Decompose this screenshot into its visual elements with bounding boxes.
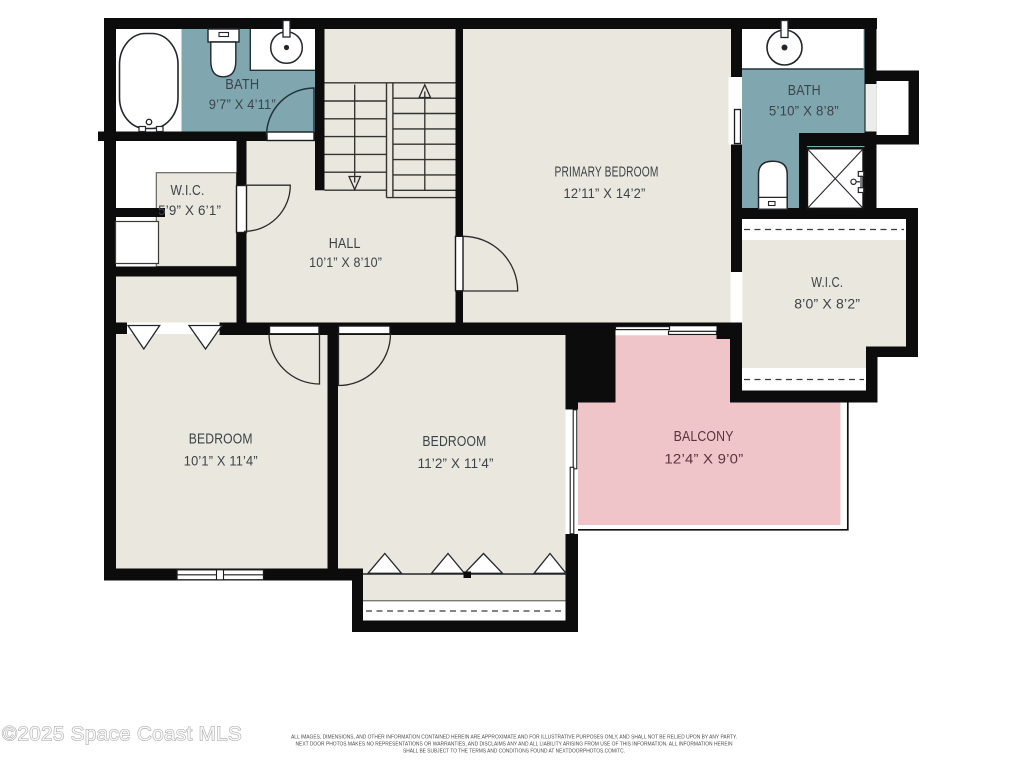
svg-text:©2025 Space Coast MLS: ©2025 Space Coast MLS [2,723,242,746]
svg-text:HALL: HALL [329,236,361,252]
svg-text:NEXT DOOR PHOTOS MAKES NO REPR: NEXT DOOR PHOTOS MAKES NO REPRESENTATION… [296,742,733,748]
svg-text:10’1” X 11’4”: 10’1” X 11’4” [184,453,258,469]
svg-text:SHALL BE SUBJECT TO THE TERMS: SHALL BE SUBJECT TO THE TERMS AND CONDIT… [403,749,625,755]
svg-text:BEDROOM: BEDROOM [422,434,486,450]
svg-text:12’11” X 14’2”: 12’11” X 14’2” [564,185,646,201]
svg-text:W.I.C.: W.I.C. [171,183,205,199]
svg-text:5’9” X 6’1”: 5’9” X 6’1” [158,202,221,218]
svg-text:ALL IMAGES, DIMENSIONS, AND OT: ALL IMAGES, DIMENSIONS, AND OTHER INFORM… [291,735,737,741]
svg-text:PRIMARY BEDROOM: PRIMARY BEDROOM [555,165,659,181]
svg-text:BATH: BATH [225,77,259,93]
svg-text:BATH: BATH [788,83,821,99]
svg-text:W.I.C.: W.I.C. [811,275,843,291]
svg-text:12’4” X 9’0”: 12’4” X 9’0” [664,450,743,466]
svg-text:11’2” X 11’4”: 11’2” X 11’4” [418,455,494,471]
svg-text:8’0” X 8’2”: 8’0” X 8’2” [794,296,860,312]
svg-text:BALCONY: BALCONY [674,429,734,445]
svg-text:BEDROOM: BEDROOM [189,431,253,447]
svg-text:9’7” X 4’11”: 9’7” X 4’11” [209,96,276,112]
svg-text:10’1” X 8’10”: 10’1” X 8’10” [309,254,382,270]
svg-text:5’10” X 8’8”: 5’10” X 8’8” [769,102,839,118]
